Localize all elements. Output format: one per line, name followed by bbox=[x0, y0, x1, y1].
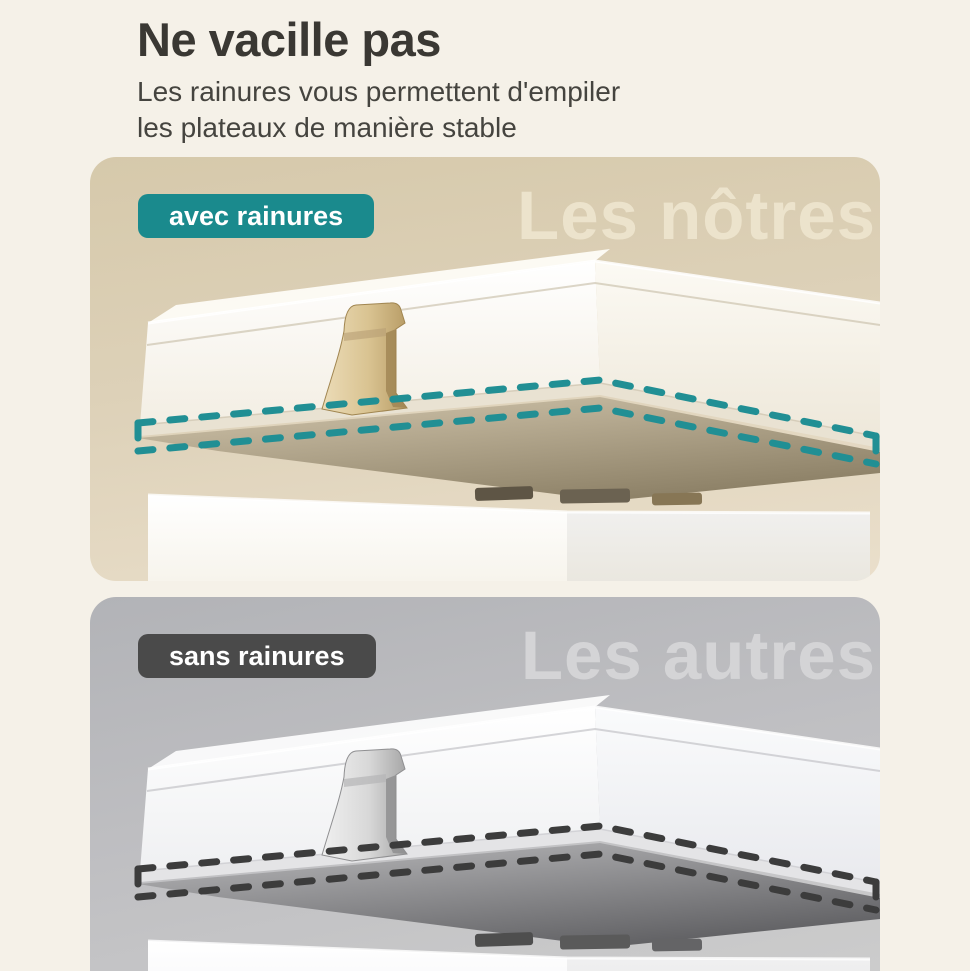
subtitle-line-1: Les rainures vous permettent d'empiler bbox=[137, 74, 620, 110]
subtitle-line-2: les plateaux de manière stable bbox=[137, 110, 620, 146]
panel-without-grooves: Les autres bbox=[90, 597, 880, 971]
badge-without-grooves: sans rainures bbox=[138, 634, 376, 678]
badge-with-grooves: avec rainures bbox=[138, 194, 374, 238]
stacked-base-tray bbox=[148, 495, 870, 581]
panel-with-grooves: Les nôtres bbox=[90, 157, 880, 581]
product-infographic: Ne vacille pas Les rainures vous permett… bbox=[0, 0, 970, 971]
page-title: Ne vacille pas bbox=[137, 12, 620, 67]
header: Ne vacille pas Les rainures vous permett… bbox=[137, 12, 620, 146]
